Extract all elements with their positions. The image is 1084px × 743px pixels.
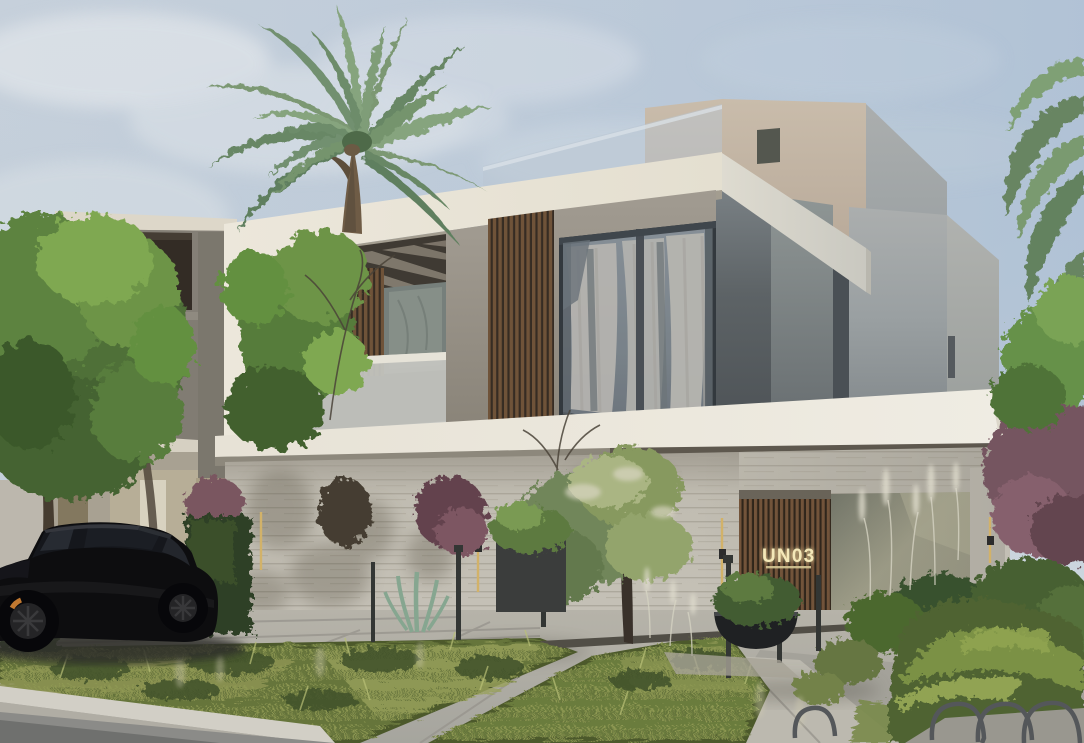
svg-text:UN03: UN03	[762, 546, 815, 567]
